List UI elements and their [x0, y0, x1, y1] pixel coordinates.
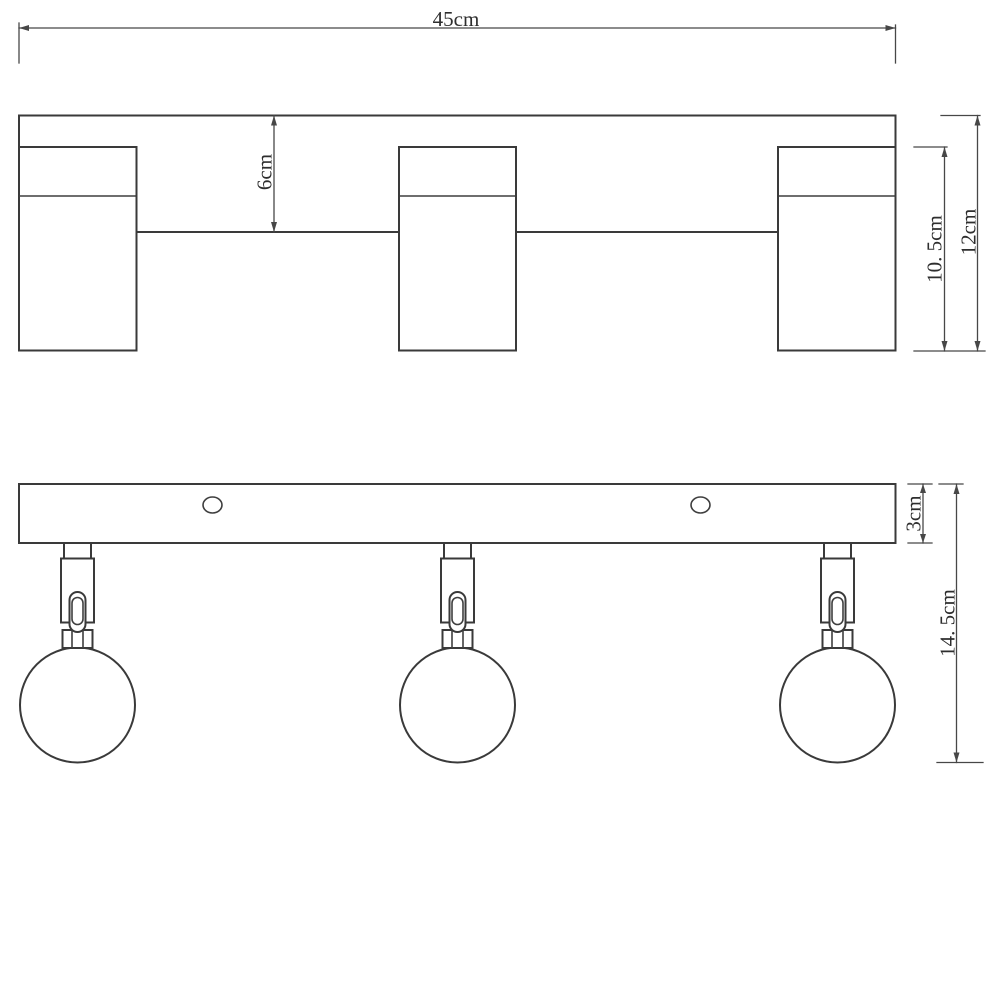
dimension-bar-thickness: 3cm	[901, 484, 932, 543]
spot-cylinder-left	[19, 147, 137, 351]
drawing-page: 45cm	[0, 0, 1000, 1000]
dimension-overall-depth: 12cm	[941, 116, 981, 352]
glass-globe	[400, 648, 515, 763]
mounting-bar-front-view	[19, 484, 896, 543]
spotlight-unit-right	[780, 544, 895, 763]
dimension-canopy-depth: 6cm	[252, 116, 277, 233]
dimension-total-drop-height: 14. 5cm	[935, 484, 983, 763]
arrowhead-bottom	[975, 341, 981, 351]
mounting-bar-top-view	[19, 116, 896, 351]
arrowhead-top	[942, 147, 948, 157]
technical-drawing-canvas: 45cm	[0, 0, 1000, 1000]
dimension-label-total-drop-height: 14. 5cm	[935, 589, 959, 657]
front-view: 3cm 14. 5cm	[19, 484, 983, 763]
arrowhead-bottom	[920, 534, 926, 543]
spot-cylinder-center	[399, 147, 516, 351]
arrowhead-top	[954, 484, 960, 494]
dimension-overall-width: 45cm	[19, 7, 896, 63]
glass-globe	[780, 648, 895, 763]
dimension-label-overall-depth: 12cm	[956, 209, 980, 256]
top-profile-view: 45cm	[19, 7, 985, 351]
dimension-label-overall-width: 45cm	[433, 7, 480, 31]
arrowhead-bottom	[271, 222, 277, 232]
arrowhead-top	[975, 116, 981, 126]
spotlight-unit-left	[20, 544, 135, 763]
arrowhead-left	[19, 25, 29, 31]
spotlight-unit-center	[400, 544, 515, 763]
spot-cylinder-right	[778, 147, 896, 351]
dimension-label-canopy-depth: 6cm	[252, 154, 276, 190]
arrowhead-bottom	[942, 341, 948, 351]
arrowhead-top	[271, 116, 277, 126]
dimension-label-spot-body-height: 10. 5cm	[922, 215, 946, 283]
arrowhead-right	[886, 25, 896, 31]
bar-body	[19, 484, 896, 543]
glass-globe	[20, 648, 135, 763]
arrowhead-bottom	[954, 753, 960, 763]
dimension-label-bar-thickness: 3cm	[901, 495, 925, 531]
arrowhead-top	[920, 484, 926, 493]
